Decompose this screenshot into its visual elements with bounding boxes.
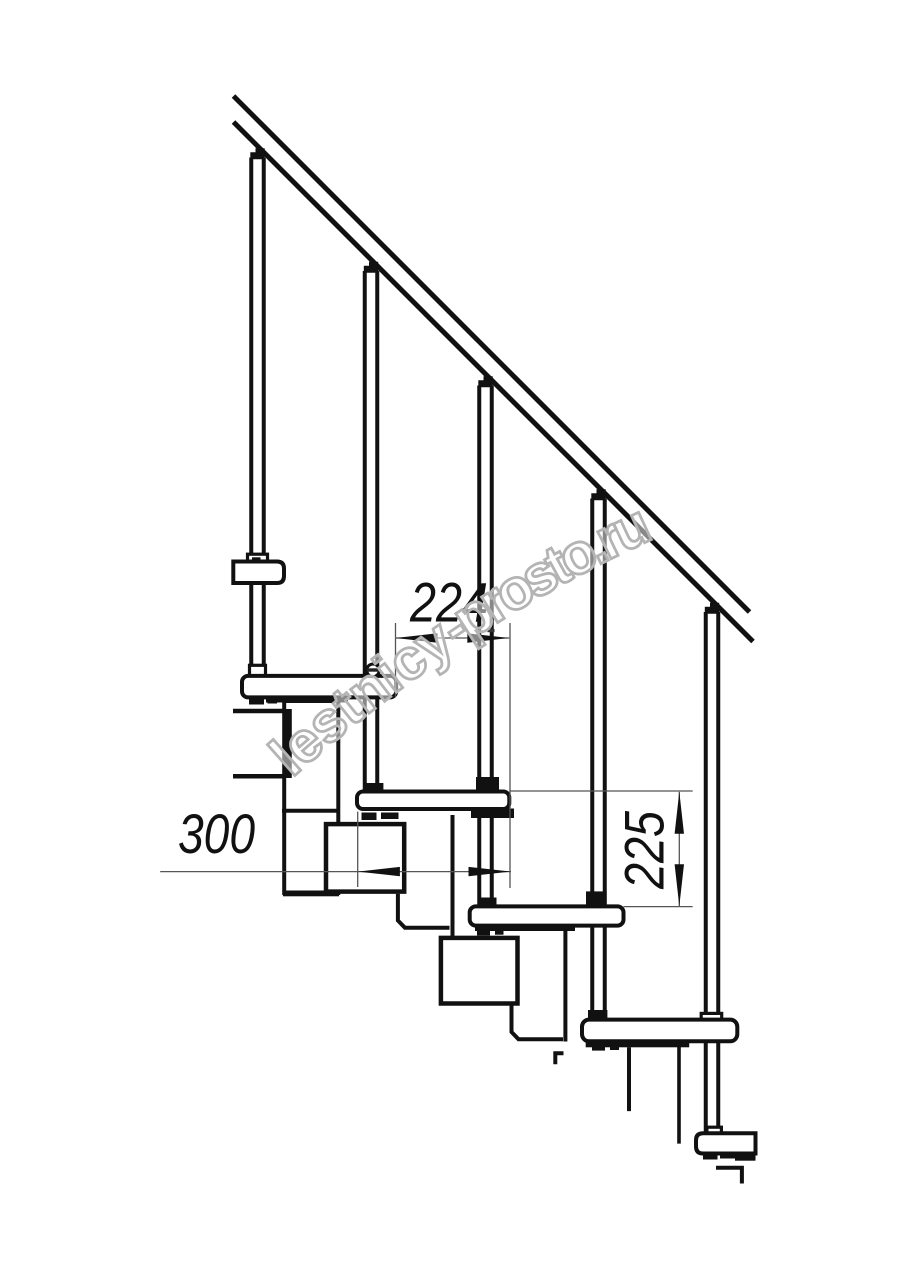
svg-text:225: 225 xyxy=(613,810,676,890)
svg-text:300: 300 xyxy=(178,802,255,865)
